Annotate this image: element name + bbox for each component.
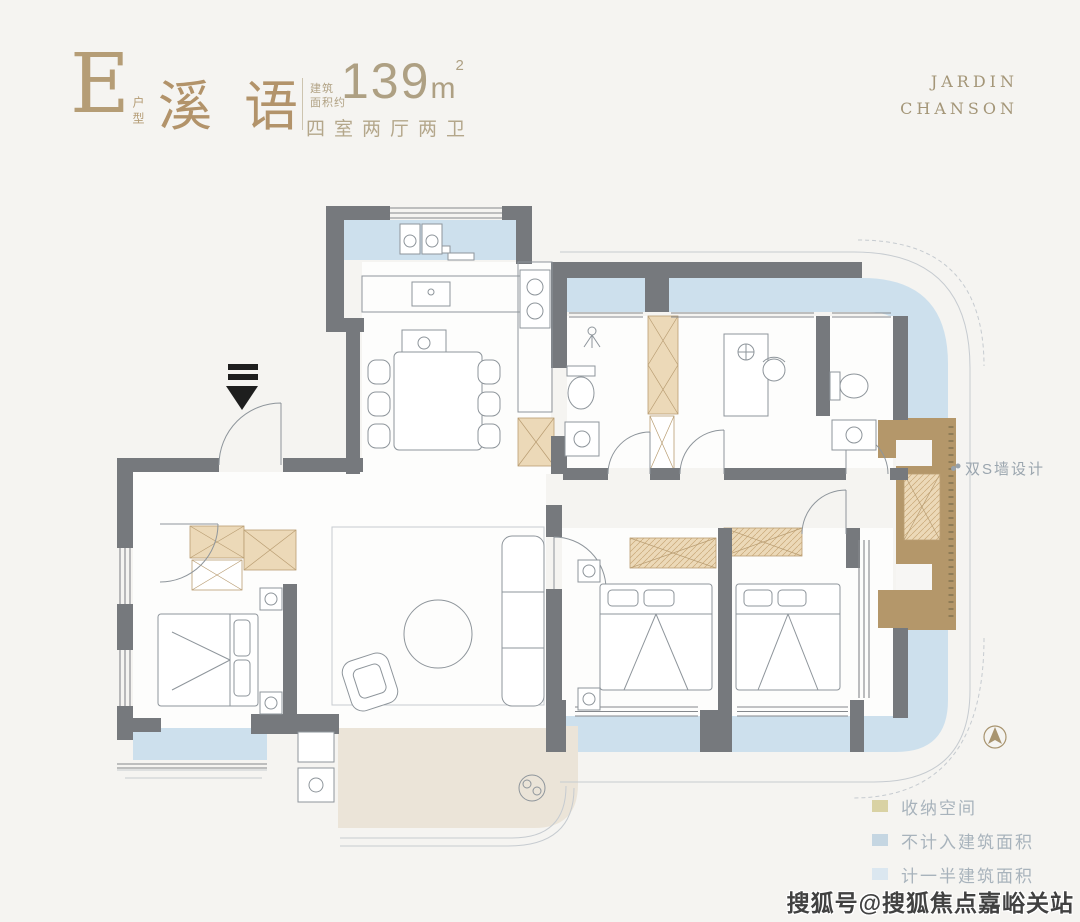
floor-plan bbox=[0, 0, 1080, 922]
half-area-swatch-icon bbox=[872, 868, 888, 880]
legend-item-half-area: 计一半建筑面积 bbox=[872, 862, 1034, 886]
watermark: 搜狐号@搜狐焦点嘉峪关站 bbox=[787, 884, 1074, 918]
legend-item-excluded-area: 不计入建筑面积 bbox=[872, 828, 1034, 852]
s-wall-label: 双S墙设计 bbox=[965, 458, 1045, 479]
legend-item-storage: 收纳空间 bbox=[872, 794, 1034, 818]
legend-label: 计一半建筑面积 bbox=[901, 862, 1034, 887]
bullet-dot-icon bbox=[951, 466, 956, 471]
legend-label: 不计入建筑面积 bbox=[901, 828, 1034, 853]
excluded-area-swatch-icon bbox=[872, 834, 888, 846]
floorplan-page: E 户型 溪语 建筑 面积约 139m2 四室两厅两卫 JARDIN CHANS… bbox=[0, 0, 1080, 922]
terrace bbox=[338, 726, 578, 846]
entry-arrow-icon bbox=[226, 364, 258, 410]
compass-icon bbox=[984, 726, 1006, 748]
s-wall-callout: 双S墙设计 bbox=[951, 458, 1045, 479]
storage-swatch-icon bbox=[872, 800, 888, 812]
s-wall bbox=[878, 418, 956, 630]
legend-label: 收纳空间 bbox=[901, 794, 977, 819]
legend: 收纳空间 不计入建筑面积 计一半建筑面积 bbox=[872, 794, 1034, 896]
